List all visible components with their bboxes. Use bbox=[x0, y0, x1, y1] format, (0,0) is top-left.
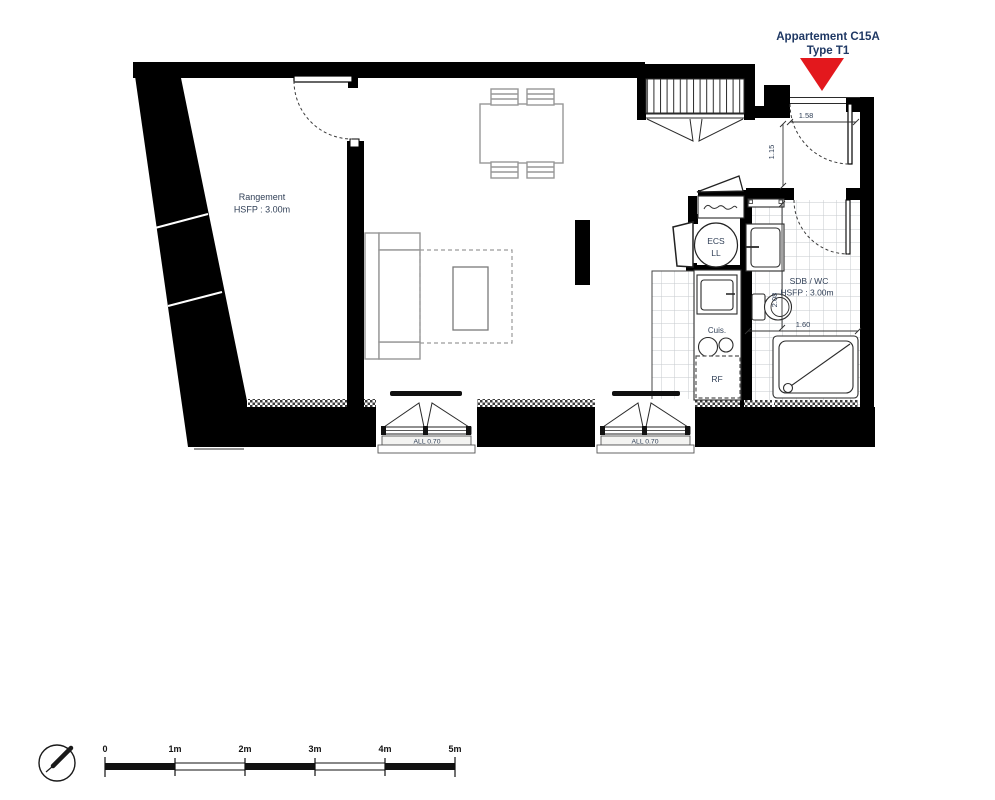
scale-segment bbox=[245, 763, 315, 770]
rangement-height-label: HSFP : 3.00m bbox=[234, 205, 290, 215]
ll-label: LL bbox=[711, 248, 721, 258]
scale-label: 0 bbox=[102, 744, 107, 754]
dining-table bbox=[480, 104, 563, 163]
north-indicator bbox=[39, 745, 75, 781]
scale-segment bbox=[315, 763, 385, 770]
entrance-marker-icon bbox=[800, 58, 844, 91]
scale-label: 4m bbox=[378, 744, 391, 754]
louver-frame-top bbox=[637, 64, 755, 79]
wall-top bbox=[133, 62, 645, 78]
facade-hatch bbox=[475, 399, 595, 407]
entry-door-leaf bbox=[848, 104, 852, 164]
window-sill-label: ALL 0.70 bbox=[632, 439, 659, 446]
rangement-door-swing-arc bbox=[294, 81, 352, 139]
rangement-label: Rangement bbox=[239, 192, 286, 202]
wall-sdb-north-stub bbox=[846, 188, 860, 200]
fridge-label: RF bbox=[711, 374, 722, 384]
window-sill-outer bbox=[597, 445, 694, 453]
chair bbox=[491, 89, 518, 105]
dim-entry-width: 1.58 bbox=[799, 111, 814, 120]
kitchen-tile-strip bbox=[652, 271, 694, 407]
louver-window bbox=[646, 79, 744, 141]
dim-sdb-depth: 2.08 bbox=[770, 293, 779, 308]
scale-label: 2m bbox=[238, 744, 251, 754]
window-post bbox=[642, 426, 647, 435]
window-post bbox=[381, 426, 386, 435]
sdb-height-label: HSFP : 3.00m bbox=[780, 288, 833, 298]
chair bbox=[527, 89, 554, 105]
window-post bbox=[466, 426, 471, 435]
chair bbox=[527, 162, 554, 178]
scale-bar: 0 1m 2m 3m 4m 5m bbox=[102, 744, 461, 777]
closet-door-flap-top bbox=[697, 176, 743, 192]
shower bbox=[773, 336, 858, 398]
scale-segment bbox=[385, 763, 455, 770]
toilet-tank bbox=[752, 294, 765, 320]
coffee-table bbox=[453, 267, 488, 330]
dim-sdb-width: 1.60 bbox=[796, 320, 811, 329]
cooktop-burner-large bbox=[699, 338, 718, 357]
ecs-label: ECS bbox=[707, 236, 725, 246]
window-sill-label: ALL 0.70 bbox=[414, 439, 441, 446]
window-1: ALL 0.70 bbox=[376, 391, 477, 455]
pillar-door-notch bbox=[350, 139, 359, 147]
chair bbox=[491, 162, 518, 178]
structural-column bbox=[575, 220, 590, 285]
shower-drain bbox=[784, 384, 793, 393]
wall-pillar bbox=[347, 141, 364, 407]
louver-slats bbox=[646, 79, 744, 113]
facade-hatch bbox=[248, 399, 347, 407]
scale-segment bbox=[175, 763, 245, 770]
apartment-title: Appartement C15A bbox=[776, 31, 880, 43]
scale-label: 3m bbox=[308, 744, 321, 754]
wall-entry-jamb bbox=[764, 85, 790, 118]
facade-hatch bbox=[364, 399, 378, 407]
radiator bbox=[390, 391, 462, 396]
cooktop-burner-small bbox=[719, 338, 733, 352]
furniture bbox=[365, 89, 590, 359]
ecs-closet: ECS LL bbox=[673, 176, 744, 267]
louver-frame-left bbox=[637, 64, 646, 120]
casement-swing-right bbox=[699, 119, 743, 141]
window-post bbox=[600, 426, 605, 435]
hatch-strips bbox=[248, 399, 858, 407]
title-block: Appartement C15A Type T1 bbox=[776, 31, 880, 91]
window-post bbox=[685, 426, 690, 435]
floor-plan-drawing: ALL 0.70 ALL 0.70 bbox=[0, 0, 995, 800]
wall-left-slanted bbox=[133, 62, 247, 447]
rangement-door-leaf bbox=[294, 76, 352, 82]
sdb-label: SDB / WC bbox=[790, 276, 829, 286]
scale-label: 1m bbox=[168, 744, 181, 754]
wall-bottom bbox=[240, 407, 875, 447]
dim-entry-depth: 1.15 bbox=[767, 145, 776, 160]
radiator bbox=[612, 391, 680, 396]
facade-hatch bbox=[774, 400, 858, 407]
scale-label: 5m bbox=[448, 744, 461, 754]
window-post bbox=[423, 426, 428, 435]
wall-sdb-north bbox=[746, 188, 794, 200]
kitchen-fixtures: Cuis. RF bbox=[694, 270, 741, 400]
closet-door-flap-left bbox=[673, 222, 693, 267]
kitchen-sink-basin bbox=[701, 280, 733, 310]
wall-right bbox=[860, 97, 874, 447]
kitchen-label: Cuis. bbox=[708, 326, 726, 335]
scale-segment bbox=[105, 763, 175, 770]
facade-hatch bbox=[744, 400, 772, 407]
sdb-door-leaf bbox=[846, 200, 850, 254]
window-sill-outer bbox=[378, 445, 475, 453]
apartment-type: Type T1 bbox=[807, 45, 850, 57]
mirror-shelf bbox=[748, 199, 784, 207]
wall-entry-jamb-foot bbox=[746, 106, 766, 118]
floor-plan-page: ALL 0.70 ALL 0.70 bbox=[0, 0, 995, 800]
window-2: ALL 0.70 bbox=[595, 391, 695, 455]
sofa bbox=[365, 233, 420, 359]
casement-swing-left bbox=[647, 119, 693, 141]
